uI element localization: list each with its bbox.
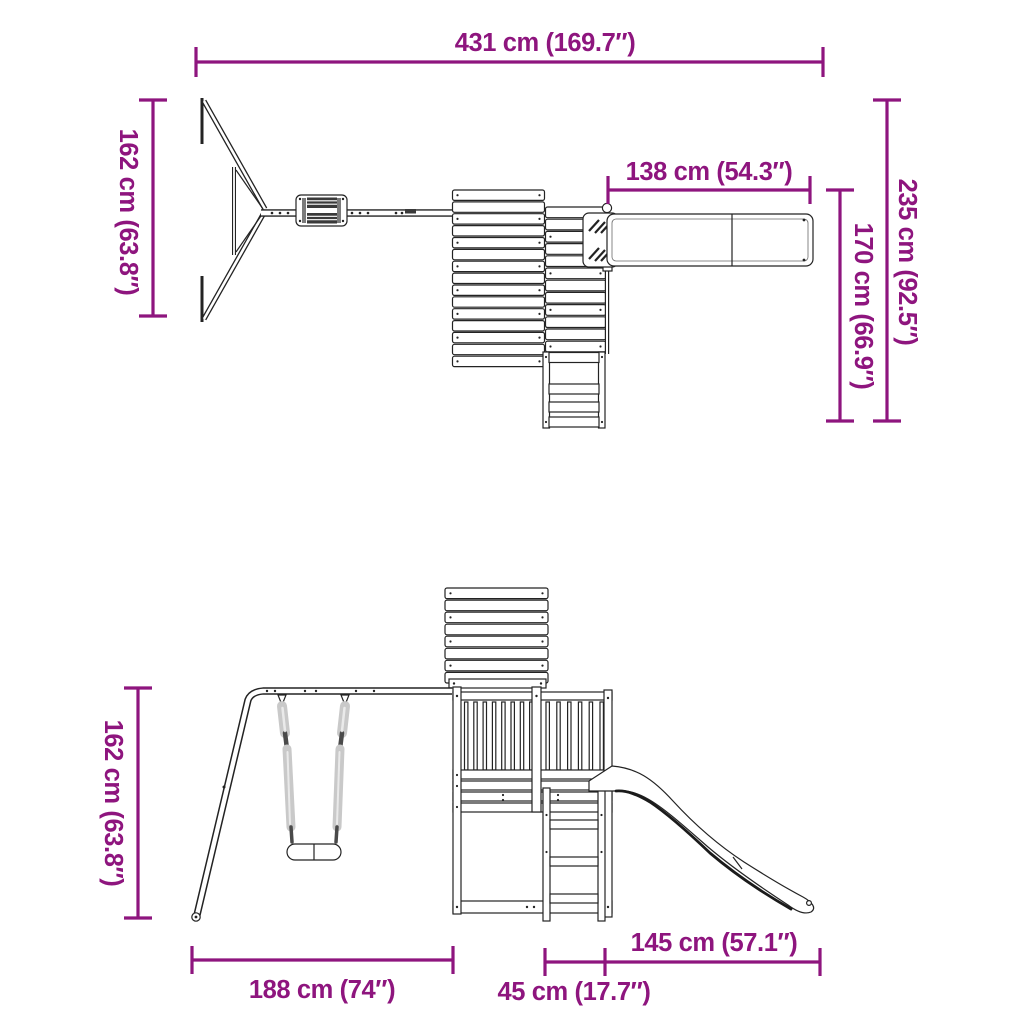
dimension-label-overall-width: 431 cm (169.7″) [455,29,636,57]
swing-frame-side-view [192,690,452,921]
swing-seat-top-view [296,195,347,226]
tower-side-view [453,687,612,917]
dimension-overall-width: 431 cm (169.7″) [196,29,823,77]
dimension-label-ladder-width: 45 cm (17.7″) [497,978,650,1006]
dimension-label-frame-width: 188 cm (74″) [249,976,395,1004]
dimension-ladder-width: 45 cm (17.7″) [497,948,650,1006]
swing-side-view [278,695,349,860]
dimension-frame-depth: 162 cm (63.8″) [114,100,167,316]
dimension-slide-side-length: 145 cm (57.1″) [605,929,820,976]
dimension-frame-height: 162 cm (63.8″) [99,688,152,918]
dimension-label-overall-depth: 235 cm (92.5″) [893,179,921,346]
ladder-top-view [543,352,605,428]
slide-side-view [589,766,814,913]
dimension-label-frame-depth: 162 cm (63.8″) [114,129,142,296]
blueprint-svg: 431 cm (169.7″) 162 cm (63.8″) 138 cm (5… [0,0,1024,1024]
dimension-slide-top-length: 138 cm (54.3″) [608,158,810,204]
dimension-overall-depth: 235 cm (92.5″) [873,100,921,421]
slide-top-view [607,214,813,266]
dimension-frame-width: 188 cm (74″) [192,946,453,1004]
dimension-label-tower-depth: 170 cm (66.9″) [849,223,877,390]
side-view: 162 cm (63.8″) 188 cm (74″) 45 cm (17.7″… [99,588,820,1006]
top-view: 431 cm (169.7″) 162 cm (63.8″) 138 cm (5… [114,29,921,428]
dimension-label-slide-top-length: 138 cm (54.3″) [626,158,793,186]
dimension-diagram: 431 cm (169.7″) 162 cm (63.8″) 138 cm (5… [0,0,1024,1024]
roof-side-view [445,588,548,688]
dimension-label-slide-side-length: 145 cm (57.1″) [631,929,798,957]
dimension-tower-depth: 170 cm (66.9″) [826,190,877,421]
dimension-label-frame-height: 162 cm (63.8″) [99,720,127,887]
